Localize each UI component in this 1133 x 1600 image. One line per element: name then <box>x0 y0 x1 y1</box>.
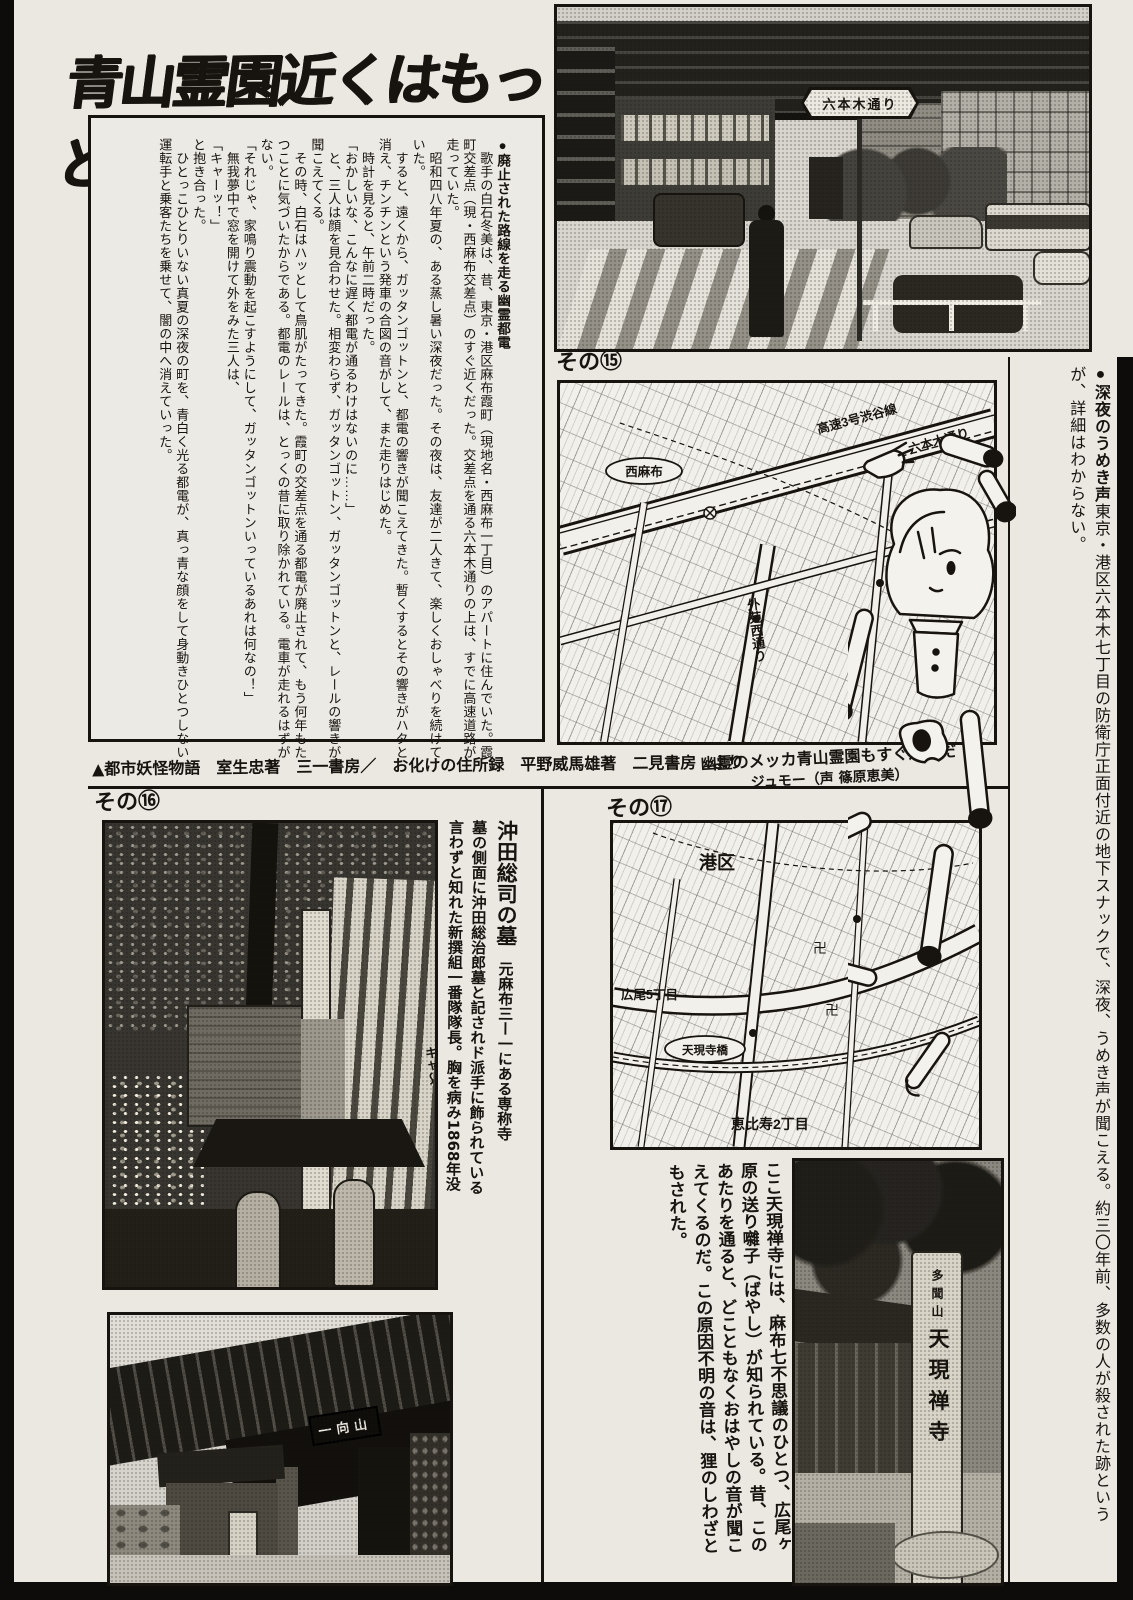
signal-box-shape <box>809 157 843 219</box>
ghost-tram-story-text: ●廃止された路線を走る幽霊都電 歌手の白石冬美は、昔、東京・港区麻布霞町（現地名… <box>101 138 528 759</box>
broken-doll-illustration <box>848 412 1016 1112</box>
okita-note-title: 沖田総司の墓 <box>494 820 519 946</box>
map17-label-ebisu: 恵比寿2丁目 <box>731 1116 809 1132</box>
pillar-inscription-top: 多聞山 <box>930 1269 944 1323</box>
doll-bodice <box>910 620 962 698</box>
sign-text: 六本木通り <box>822 94 897 113</box>
mid-building-windows <box>621 159 769 185</box>
okita-grave-photo <box>102 820 438 1290</box>
statue-shape <box>235 1191 281 1290</box>
pedestrian-silhouette <box>747 205 787 337</box>
map17-temple-mark: 卍 <box>825 1002 839 1018</box>
crosswalk-shape <box>557 249 889 349</box>
tengenji-note: ここ天現禅寺には、麻布七不思議のひとつ、広尾ヶ原の送り囃子（ばやし）が知られてい… <box>543 1161 793 1559</box>
doll-leg <box>848 607 876 722</box>
car-shape <box>909 215 983 249</box>
doll-leg <box>848 808 874 872</box>
okita-grave-note: 沖田総司の墓 元麻布三ー一にある専称寺 墓の側面に沖田総治郎墓と記されド派手に飾… <box>440 820 546 1299</box>
label-sono-16: その⑯ <box>93 783 160 817</box>
sidebar-heading: ●深夜のうめき声 <box>1092 366 1109 503</box>
tombstone-shape <box>187 1005 303 1127</box>
label-sono-17: その⑰ <box>605 789 672 823</box>
okita-scream-note: キャ〜 <box>420 1046 439 1085</box>
doll-hand <box>861 442 917 482</box>
scan-edge-right <box>1117 357 1133 1600</box>
senshoji-gate-photo: 一向山 <box>107 1312 453 1586</box>
station-mark <box>704 507 716 519</box>
gate-plaque-text: 一向山 <box>317 1412 373 1439</box>
map17-label-ward: 港区 <box>699 853 735 873</box>
doll-head <box>886 490 993 618</box>
guardrail-post <box>1023 303 1028 331</box>
temple-wall-shape <box>795 1343 913 1483</box>
statue-shape <box>333 1179 375 1287</box>
doll-leg <box>917 844 956 967</box>
story-heading: ●廃止された路線を走る幽霊都電 <box>495 138 510 350</box>
doll-leg <box>848 947 879 990</box>
ground-shape <box>110 1555 450 1583</box>
map15-label-nishiazabu: 西麻布 <box>625 464 663 479</box>
map17-label-hiroo: 広尾5丁目 <box>621 987 678 1002</box>
shrine-roof-shape <box>193 1119 425 1167</box>
magazine-page: 青山霊園近くはもっと怖い! ●廃止された路線を走る幽霊都電 歌手の白石冬美は、昔… <box>0 0 1133 1600</box>
taxi-shape <box>1033 251 1091 285</box>
sign-face: 六本木通り <box>804 90 916 116</box>
pillar-inscription-main: 天現禅寺 <box>926 1327 949 1451</box>
doll-bloomers <box>899 719 950 766</box>
sidebar-moaning-voices: ●深夜のうめき声東京・港区六本木七丁目の防衛庁正面付近の地下スナックで、深夜、う… <box>1014 366 1112 1546</box>
dark-van-shape <box>653 193 745 247</box>
pillar-base-shape <box>891 1531 999 1579</box>
bus-shape <box>985 203 1091 251</box>
pedestrian-body <box>749 220 784 337</box>
guardrail-post <box>873 303 878 331</box>
scan-edge-left <box>0 0 14 1600</box>
sidebar-body: 東京・港区六本木七丁目の防衛庁正面付近の地下スナックで、深夜、うめき声が聞こえる… <box>1067 366 1109 1523</box>
story-body: 歌手の白石冬美は、昔、東京・港区麻布霞町（現地名・西麻布一丁目）のアパートに住ん… <box>157 138 493 759</box>
ghost-tram-story-box: ●廃止された路線を走る幽霊都電 歌手の白石冬美は、昔、東京・港区麻布霞町（現地名… <box>88 115 545 742</box>
mid-building-windows <box>621 115 769 141</box>
trees-shape <box>827 147 1007 223</box>
notice-board-shape <box>228 1511 258 1559</box>
sign-pole <box>857 99 862 341</box>
doll-sleeve <box>938 432 1005 471</box>
roppongi-crossing-photo: 六本木通り <box>554 4 1092 352</box>
tengenji-pillar-photo: 多聞山 天現禅寺 <box>792 1158 1004 1586</box>
map17-temple-mark: 卍 <box>813 940 827 956</box>
doll-foot <box>900 1030 956 1098</box>
shadow-ground-shape <box>795 1523 895 1583</box>
guardrail-post <box>949 303 954 331</box>
stone-shape <box>301 1019 345 1123</box>
map17-label-bridge: 天現寺橋 <box>682 1043 728 1057</box>
roppongi-dori-sign: 六本木通り <box>801 87 919 119</box>
label-sono-15: その⑮ <box>555 343 622 377</box>
doll-leg <box>958 710 992 829</box>
